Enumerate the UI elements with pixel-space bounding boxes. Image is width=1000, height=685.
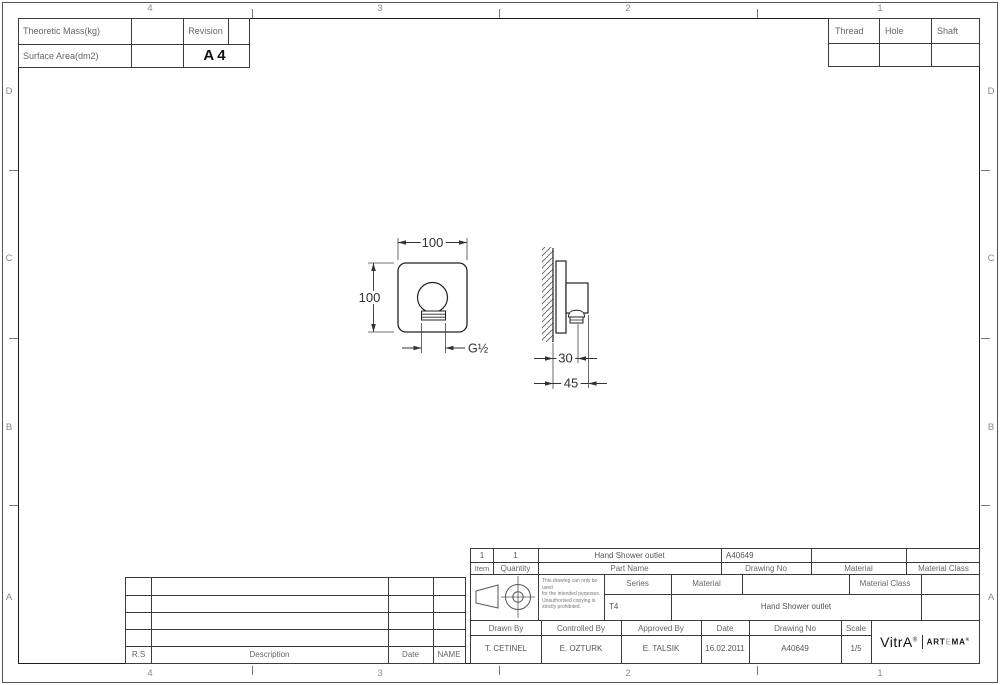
- zone-letter: B: [984, 422, 998, 434]
- zone-number: 3: [360, 3, 400, 15]
- zone-letter: A: [2, 592, 16, 604]
- zone-tick: [252, 9, 253, 18]
- scale-label: Scale: [841, 624, 871, 634]
- front-view: 100 100 G½: [359, 235, 489, 356]
- scale-value: 1/5: [841, 644, 871, 654]
- part-name-value: Hand Shower outlet: [538, 551, 721, 561]
- zone-tick: [9, 338, 18, 339]
- side-depth-dim: 30: [558, 351, 572, 366]
- material-class-top-label: Material Class: [906, 564, 981, 574]
- front-width-dim: 100: [422, 235, 444, 250]
- date-value: 16.02.2011: [701, 644, 749, 654]
- zone-tick: [499, 9, 500, 18]
- zone-number: 2: [608, 668, 648, 680]
- material-label: Material: [671, 579, 742, 589]
- theoretic-mass-label: Theoretic Mass(kg): [23, 26, 100, 36]
- vitra-logo: VitrA®: [880, 634, 918, 650]
- wall-hatching: [542, 247, 553, 342]
- thread-size-dim: G½: [468, 342, 489, 356]
- revision-label: Revision: [183, 26, 228, 36]
- date-label: Date: [701, 624, 749, 634]
- zone-tick: [757, 666, 758, 675]
- zone-number: 2: [608, 3, 648, 15]
- name-column-label: NAME: [433, 650, 465, 660]
- quantity-label: Quantity: [493, 564, 538, 574]
- zone-tick: [981, 505, 990, 506]
- part-views-drawing: 100 100 G½: [330, 220, 640, 405]
- title-block: 1 1 Hand Shower outlet A40649 Item Quant…: [470, 548, 980, 664]
- product-name: Hand Shower outlet: [671, 602, 921, 612]
- drawing-no-label: Drawing No: [749, 624, 841, 634]
- drawn-by-label: Drawn By: [471, 624, 541, 634]
- material-top-label: Material: [811, 564, 906, 574]
- description-column-label: Description: [151, 650, 388, 660]
- zone-tick: [9, 505, 18, 506]
- surface-area-label: Surface Area(dm2): [23, 51, 99, 61]
- zone-tick: [757, 9, 758, 18]
- date-column-label: Date: [388, 650, 433, 660]
- zone-tick: [499, 666, 500, 675]
- series-value: T4: [609, 602, 618, 612]
- drawing-no-value: A40649: [749, 644, 841, 654]
- zone-letter: D: [2, 86, 16, 98]
- zone-letter: B: [2, 422, 16, 434]
- mass-area-table: Theoretic Mass(kg) Revision Surface Area…: [18, 18, 250, 68]
- outlet-knob: [418, 283, 448, 313]
- zone-tick: [9, 170, 18, 171]
- artema-logo: ARTEMA®: [927, 637, 970, 647]
- zone-tick: [252, 666, 253, 675]
- approved-by-label: Approved By: [621, 624, 701, 634]
- zone-number: 1: [860, 3, 900, 15]
- rs-column-label: R.S: [126, 650, 151, 660]
- approved-by-value: E. TALSIK: [621, 644, 701, 654]
- revision-history-table: R.S Description Date NAME: [125, 577, 466, 664]
- mounting-plate: [556, 261, 566, 333]
- side-view: 30 45: [534, 247, 607, 391]
- material-class-label: Material Class: [849, 579, 921, 589]
- zone-tick: [981, 170, 990, 171]
- first-angle-projection-icon: [471, 574, 538, 620]
- zone-number: 3: [360, 668, 400, 680]
- item-value: 1: [471, 551, 493, 561]
- zone-letter: D: [984, 86, 998, 98]
- side-total-depth-dim: 45: [564, 376, 578, 391]
- zone-tick: [981, 338, 990, 339]
- thread-fitting: [422, 311, 446, 320]
- drawing-sheet: D C B A D C B A 4 3 2 1 4 3 2 1 Theoreti…: [0, 0, 1000, 685]
- front-height-dim: 100: [359, 290, 381, 305]
- paper-size-label: A4: [183, 47, 249, 65]
- zone-number: 4: [130, 3, 170, 15]
- drawing-no-top-value: A40649: [726, 551, 754, 561]
- brand-logo: VitrA® ARTEMA®: [871, 620, 979, 663]
- hole-label: Hole: [885, 26, 904, 36]
- drawing-no-top-label: Drawing No: [721, 564, 811, 574]
- quantity-value: 1: [493, 551, 538, 561]
- drawn-by-value: T. CETINEL: [471, 644, 541, 654]
- zone-letter: C: [984, 253, 998, 265]
- thread-label: Thread: [835, 26, 864, 36]
- controlled-by-value: E. OZTURK: [541, 644, 621, 654]
- logo-divider: [922, 635, 923, 649]
- controlled-by-label: Controlled By: [541, 624, 621, 634]
- part-name-label: Part Name: [538, 564, 721, 574]
- copyright-disclaimer: This drawing can only be used for the in…: [542, 578, 602, 611]
- shaft-label: Shaft: [937, 26, 958, 36]
- zone-number: 1: [860, 668, 900, 680]
- series-label: Series: [604, 579, 671, 589]
- zone-letter: C: [2, 253, 16, 265]
- zone-letter: A: [984, 592, 998, 604]
- item-label: Item: [471, 564, 493, 574]
- outlet-body: [566, 283, 588, 313]
- zone-number: 4: [130, 668, 170, 680]
- thread-hole-shaft-table: Thread Hole Shaft: [828, 18, 980, 67]
- outlet-cap: [569, 310, 585, 317]
